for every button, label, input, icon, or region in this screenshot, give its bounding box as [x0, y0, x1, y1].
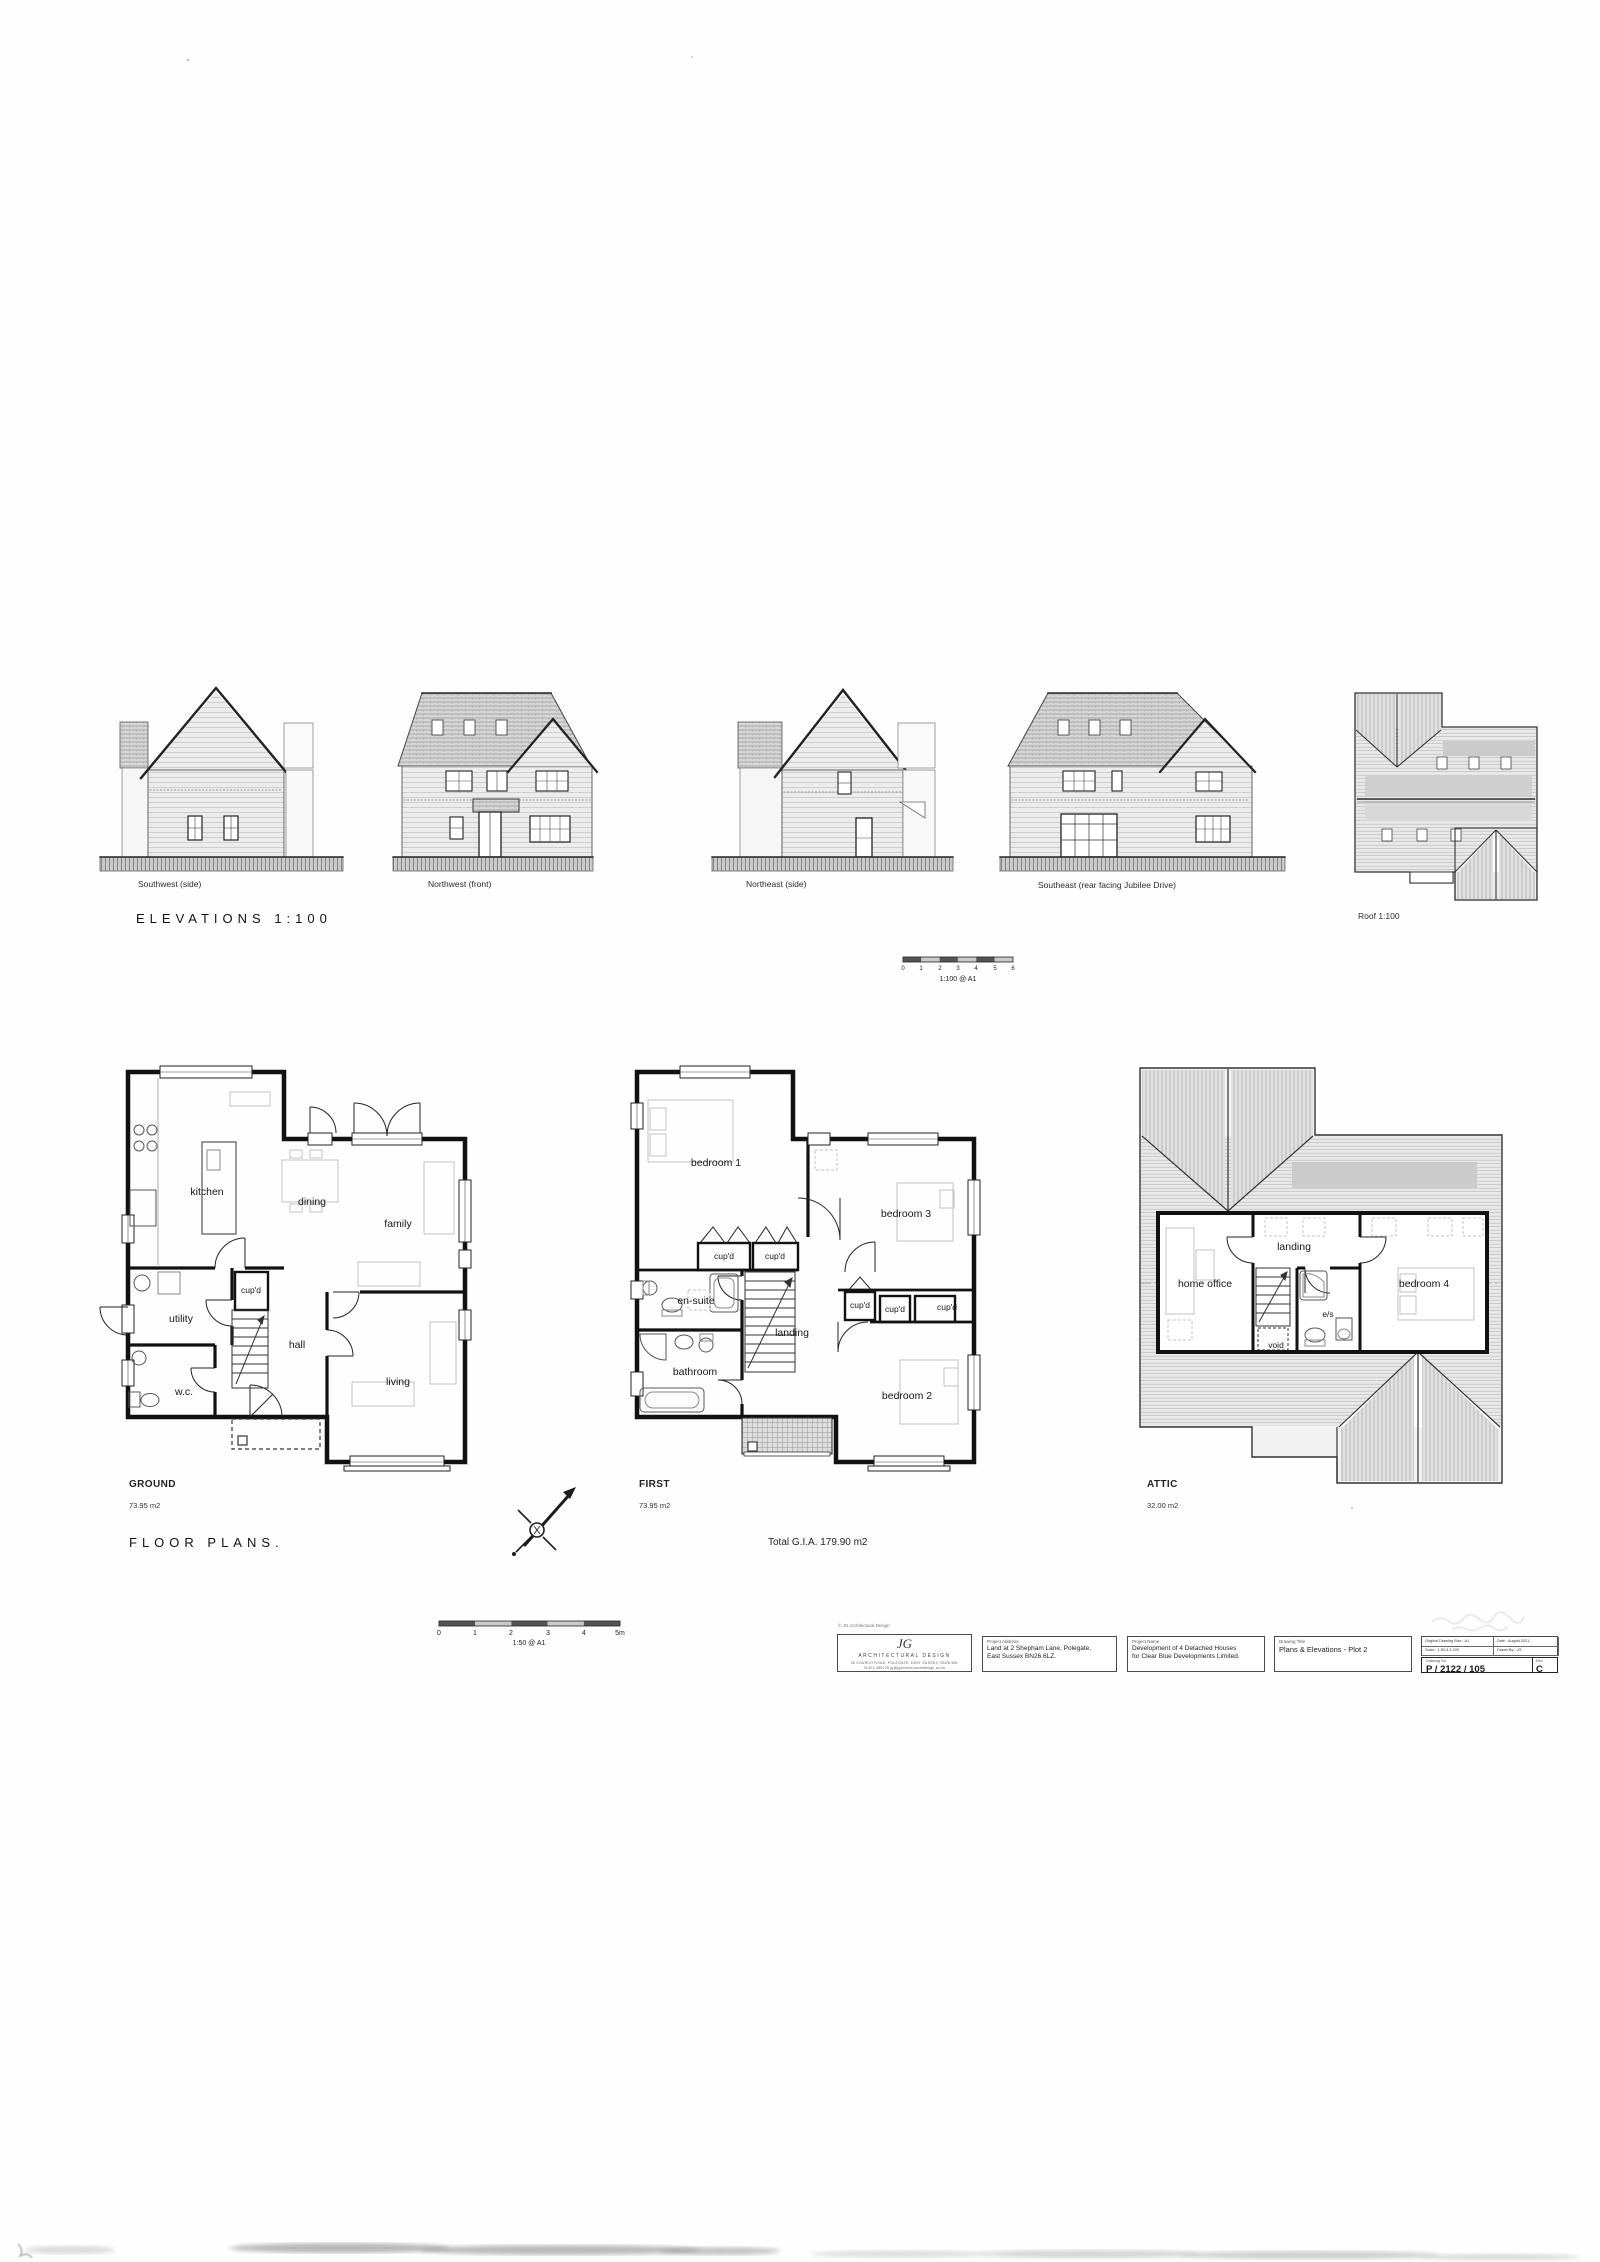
room-label-utility: utility: [169, 1314, 193, 1325]
scale100-tick: 1: [919, 966, 922, 972]
north-arrow-icon: [512, 1487, 576, 1556]
scale100-tick: 2: [938, 966, 941, 972]
room-label-cupd3: cup'd: [850, 1301, 870, 1310]
scale-bar-50: [439, 1621, 620, 1626]
revision-label: Rev: [1536, 1659, 1557, 1663]
room-label-ensuite: en-suite: [677, 1296, 714, 1307]
scale100-tick: 4: [974, 966, 977, 972]
project-address-box: Project Address Land at 2 Shepham Lane, …: [982, 1636, 1117, 1672]
drawing-info-table: Original Drawing Size : A1 Date : August…: [1421, 1636, 1558, 1656]
elevation-northeast: [712, 690, 953, 871]
architect-name: ARCHITECTURAL DESIGN: [838, 1653, 971, 1659]
first-doors: [700, 1198, 875, 1404]
floor-plans-section-title: FLOOR PLANS.: [129, 1536, 284, 1549]
project-address-line2: East Sussex BN26 6LZ.: [987, 1653, 1116, 1660]
scale50-tick: 4: [582, 1630, 586, 1637]
elevation-southwest: [100, 688, 343, 871]
room-label-void: void: [1268, 1341, 1284, 1350]
scale100-tick: 6: [1011, 966, 1014, 972]
elevation-caption-southeast: Southeast (rear facing Jubilee Drive): [1038, 881, 1176, 890]
drawing-number-value: P / 2122 / 105: [1426, 1664, 1532, 1675]
architect-address: 36 CHURCH ROAD, POLEGATE, EAST SUSSEX, B…: [838, 1661, 971, 1665]
drawing-title-label: Drawing Title: [1279, 1639, 1411, 1644]
elevations-section-title: ELEVATIONS 1:100: [136, 912, 332, 925]
drawing-number-box: Drawing No P / 2122 / 105 Rev C: [1421, 1657, 1558, 1673]
room-label-bedroom4: bedroom 4: [1399, 1279, 1449, 1290]
room-label-living: living: [386, 1377, 410, 1388]
scale50-tick: 1: [473, 1630, 477, 1637]
drawing-title-box: Drawing Title Plans & Elevations - Plot …: [1274, 1636, 1412, 1672]
room-label-bedroom1: bedroom 1: [691, 1158, 741, 1169]
ground-stairs: [232, 1310, 268, 1388]
scale50-tick: 3: [546, 1630, 550, 1637]
elevation-caption-northeast: Northeast (side): [746, 880, 806, 889]
ground-doors: [100, 1103, 420, 1417]
project-name-box: Project Name Development of 4 Detached H…: [1127, 1636, 1265, 1672]
room-label-es: e/s: [1322, 1310, 1333, 1319]
room-label-dining: dining: [298, 1197, 326, 1208]
ground-plan-area: 73.95 m2: [129, 1502, 160, 1510]
room-label-landing-first: landing: [775, 1328, 809, 1339]
room-label-cupd5: cup'd: [937, 1303, 957, 1312]
elevation-northwest: [393, 693, 597, 871]
info-drawn-cell: Drawn By : JG: [1494, 1647, 1559, 1657]
room-label-kitchen: kitchen: [190, 1187, 223, 1198]
info-scale-cell: Scale : 1:50 & 1:100: [1422, 1647, 1494, 1657]
scale-bar-100: [903, 957, 1013, 962]
first-windows: [631, 1066, 980, 1471]
drawing-sheet: Southwest (side) Northwest (front) North…: [0, 0, 1600, 2262]
info-size-cell: Original Drawing Size : A1: [1422, 1637, 1494, 1647]
info-date-cell: Date : August 2021: [1494, 1637, 1559, 1647]
room-label-cupd2: cup'd: [765, 1252, 785, 1261]
room-label-bedroom2: bedroom 2: [882, 1391, 932, 1402]
room-label-hall: hall: [289, 1340, 305, 1351]
room-label-bathroom: bathroom: [673, 1367, 717, 1378]
project-name-line2: for Clear Blue Developments Limited.: [1132, 1653, 1264, 1660]
scale50-tick: 2: [509, 1630, 513, 1637]
project-name-label: Project Name: [1132, 1639, 1264, 1644]
room-label-landing-attic: landing: [1277, 1242, 1311, 1253]
elevation-caption-southwest: Southwest (side): [138, 880, 201, 889]
project-address-label: Project Address: [987, 1639, 1116, 1644]
scale50-caption: 1:50 @ A1: [513, 1640, 546, 1647]
room-label-cupd-ground: cup'd: [241, 1286, 261, 1295]
scale50-tick: 5m: [615, 1630, 625, 1637]
first-floor-plan: [637, 1072, 974, 1462]
copyright-note: © JG Architectural Design: [838, 1624, 890, 1629]
room-label-wc: w.c.: [175, 1387, 193, 1398]
revision-value: C: [1536, 1664, 1557, 1675]
scale100-tick: 5: [993, 966, 996, 972]
scale100-tick: 0: [901, 966, 904, 972]
project-address-line1: Land at 2 Shepham Lane, Polegate,: [987, 1645, 1116, 1652]
scale100-caption: 1:100 @ A1: [940, 976, 977, 983]
architect-initials: JG: [838, 1636, 971, 1652]
architect-logo-box: JG ARCHITECTURAL DESIGN 36 CHURCH ROAD, …: [837, 1634, 972, 1672]
room-label-bedroom3: bedroom 3: [881, 1209, 931, 1220]
drawing-number-label: Drawing No: [1426, 1659, 1532, 1663]
ground-plan-name: GROUND: [129, 1480, 176, 1490]
attic-plan-name: ATTIC: [1147, 1480, 1178, 1490]
elevation-caption-northwest: Northwest (front): [428, 880, 491, 889]
attic-plan: [1140, 1068, 1502, 1483]
scale50-tick: 0: [437, 1630, 441, 1637]
room-label-cupd1: cup'd: [714, 1252, 734, 1261]
attic-plan-area: 32.00 m2: [1147, 1502, 1178, 1510]
room-label-home-office: home office: [1178, 1279, 1232, 1290]
scale100-tick: 3: [956, 966, 959, 972]
drawing-canvas: [0, 0, 1600, 2262]
room-label-cupd4: cup'd: [885, 1305, 905, 1314]
total-gia: Total G.I.A. 179.90 m2: [768, 1538, 868, 1548]
elevation-southeast: [1000, 693, 1285, 871]
ground-fixtures: [129, 1078, 236, 1407]
first-plan-area: 73.95 m2: [639, 1502, 670, 1510]
architect-contact: 01323 489139 jg@jgarchitecturaldesign.co…: [838, 1666, 971, 1670]
first-stairs: [745, 1272, 795, 1372]
first-plan-name: FIRST: [639, 1480, 670, 1490]
roof-plan: [1355, 693, 1537, 900]
project-name-line1: Development of 4 Detached Houses: [1132, 1645, 1264, 1652]
room-label-family: family: [384, 1219, 411, 1230]
drawing-title-value: Plans & Elevations - Plot 2: [1279, 1645, 1411, 1654]
pencil-note: [1432, 1612, 1524, 1631]
roof-plan-caption: Roof 1:100: [1358, 912, 1400, 921]
